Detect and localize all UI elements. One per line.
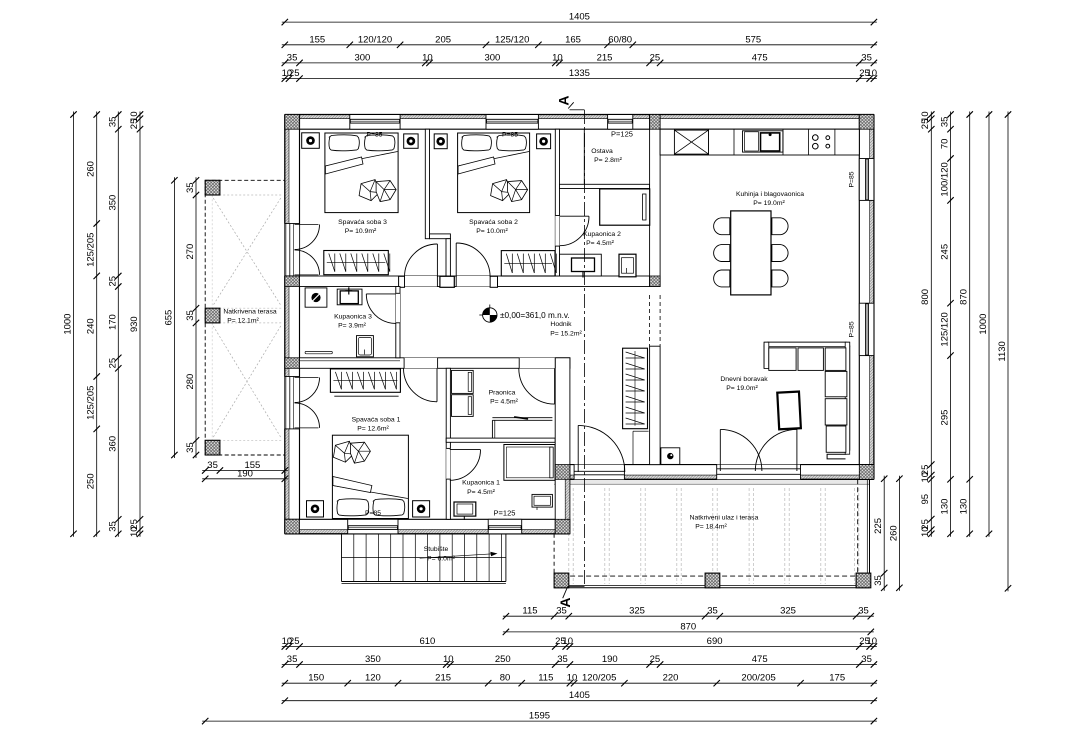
svg-text:360: 360	[107, 436, 118, 452]
svg-text:300: 300	[354, 52, 370, 63]
svg-text:575: 575	[745, 34, 761, 45]
svg-text:155: 155	[309, 34, 325, 45]
svg-text:1595: 1595	[529, 711, 550, 722]
svg-text:P= 3.9m²: P= 3.9m²	[338, 323, 367, 330]
svg-text:800: 800	[920, 289, 931, 305]
svg-text:1405: 1405	[569, 12, 590, 23]
svg-text:190: 190	[237, 468, 253, 479]
svg-text:P= 19.0m²: P= 19.0m²	[726, 385, 758, 392]
svg-text:Spavaća soba 2: Spavaća soba 2	[469, 219, 518, 226]
svg-text:100/120: 100/120	[940, 162, 951, 196]
svg-text:10: 10	[920, 526, 931, 537]
svg-text:Kupaonica 2: Kupaonica 2	[583, 231, 621, 238]
svg-text:190: 190	[602, 654, 618, 665]
svg-text:325: 325	[629, 606, 645, 617]
svg-text:200/205: 200/205	[741, 673, 775, 684]
svg-text:P= 15.2m²: P= 15.2m²	[550, 330, 582, 337]
svg-text:35: 35	[556, 606, 567, 617]
svg-text:125/205: 125/205	[86, 386, 97, 420]
svg-text:475: 475	[752, 654, 768, 665]
svg-text:±0,00=361,0 m.n.v.: ±0,00=361,0 m.n.v.	[500, 311, 570, 320]
svg-text:95: 95	[920, 494, 931, 505]
svg-text:150: 150	[308, 673, 324, 684]
svg-text:300: 300	[484, 52, 500, 63]
svg-text:P= 10.9m²: P= 10.9m²	[345, 228, 377, 235]
svg-text:10: 10	[867, 68, 878, 79]
svg-text:35: 35	[861, 654, 872, 665]
svg-text:P= 6.0m²: P= 6.0m²	[427, 556, 456, 563]
svg-text:35: 35	[557, 654, 568, 665]
svg-text:Stubište: Stubište	[424, 546, 449, 553]
svg-text:Kupaonica 1: Kupaonica 1	[462, 480, 500, 487]
svg-text:Natkrivena terasa: Natkrivena terasa	[223, 309, 276, 316]
svg-text:P=85: P=85	[849, 321, 856, 337]
svg-text:10: 10	[129, 526, 140, 537]
svg-text:P=85: P=85	[365, 510, 381, 517]
svg-text:70: 70	[940, 139, 951, 150]
svg-text:P=125: P=125	[611, 130, 633, 139]
svg-text:P= 10.0m²: P= 10.0m²	[476, 228, 508, 235]
svg-text:10: 10	[562, 636, 573, 647]
svg-text:215: 215	[435, 673, 451, 684]
svg-text:35: 35	[287, 52, 298, 63]
svg-text:170: 170	[107, 314, 118, 330]
svg-text:125/205: 125/205	[86, 233, 97, 267]
svg-text:205: 205	[435, 34, 451, 45]
svg-text:P=85: P=85	[366, 132, 382, 139]
svg-text:295: 295	[940, 410, 951, 426]
svg-text:115: 115	[522, 606, 537, 617]
svg-text:P= 2.8m²: P= 2.8m²	[594, 157, 623, 164]
svg-text:350: 350	[365, 654, 381, 665]
svg-text:35: 35	[207, 460, 218, 471]
svg-text:P= 4.5m²: P= 4.5m²	[586, 240, 615, 247]
svg-text:Dnevni boravak: Dnevni boravak	[720, 376, 768, 383]
svg-text:130: 130	[940, 499, 951, 515]
svg-text:655: 655	[163, 310, 174, 326]
svg-text:25: 25	[107, 276, 118, 287]
svg-text:35: 35	[940, 117, 951, 128]
svg-text:120/120: 120/120	[358, 34, 392, 45]
svg-text:130: 130	[959, 499, 970, 515]
svg-text:475: 475	[752, 52, 768, 63]
svg-text:245: 245	[940, 244, 951, 260]
svg-text:1000: 1000	[63, 314, 74, 335]
svg-text:610: 610	[419, 636, 435, 647]
svg-text:P= 4.5m²: P= 4.5m²	[490, 399, 519, 406]
svg-text:120: 120	[365, 673, 381, 684]
svg-text:115: 115	[538, 673, 553, 684]
svg-text:P=125: P=125	[494, 509, 516, 518]
svg-text:270: 270	[185, 244, 196, 260]
svg-text:930: 930	[129, 316, 140, 332]
svg-text:25: 25	[920, 119, 931, 130]
svg-text:25: 25	[107, 358, 118, 369]
svg-text:175: 175	[829, 673, 845, 684]
svg-text:Hodnik: Hodnik	[550, 321, 572, 328]
svg-text:260: 260	[888, 525, 899, 541]
svg-text:870: 870	[680, 621, 696, 632]
svg-text:260: 260	[86, 161, 97, 177]
svg-text:10: 10	[567, 673, 578, 684]
svg-text:870: 870	[959, 289, 970, 305]
svg-text:35: 35	[185, 310, 196, 321]
svg-text:P= 12.6m²: P= 12.6m²	[357, 426, 389, 433]
svg-text:35: 35	[707, 606, 718, 617]
svg-text:35: 35	[107, 521, 118, 532]
svg-text:Kupaonica 3: Kupaonica 3	[334, 314, 372, 321]
svg-text:25: 25	[129, 119, 140, 130]
svg-text:P= 4.5m²: P= 4.5m²	[467, 489, 496, 496]
svg-text:P=85: P=85	[849, 171, 856, 187]
svg-text:250: 250	[495, 654, 511, 665]
svg-text:Spavaća soba 1: Spavaća soba 1	[352, 417, 401, 424]
svg-text:220: 220	[663, 673, 679, 684]
svg-text:35: 35	[873, 575, 884, 586]
svg-text:250: 250	[86, 473, 97, 489]
svg-text:25: 25	[650, 654, 661, 665]
svg-text:Kuhinja i blagovaonica: Kuhinja i blagovaonica	[736, 191, 804, 198]
svg-text:280: 280	[185, 374, 196, 390]
svg-text:215: 215	[597, 52, 613, 63]
svg-text:1000: 1000	[978, 314, 989, 335]
svg-text:125/120: 125/120	[495, 34, 529, 45]
svg-text:60/80: 60/80	[608, 34, 632, 45]
svg-text:Praonica: Praonica	[489, 389, 516, 396]
svg-text:350: 350	[107, 195, 118, 211]
svg-text:35: 35	[287, 654, 298, 665]
svg-text:Ostava: Ostava	[591, 148, 613, 155]
svg-text:120/205: 120/205	[582, 673, 616, 684]
svg-text:P= 18.4m²: P= 18.4m²	[695, 524, 727, 531]
svg-text:165: 165	[565, 34, 581, 45]
svg-text:1405: 1405	[569, 690, 590, 701]
svg-text:25: 25	[289, 68, 300, 79]
svg-text:125/120: 125/120	[940, 312, 951, 346]
svg-text:35: 35	[107, 117, 118, 128]
svg-text:10: 10	[867, 636, 878, 647]
svg-text:A: A	[556, 95, 572, 105]
svg-text:Natkriveni ulaz i terasa: Natkriveni ulaz i terasa	[690, 515, 759, 522]
svg-text:35: 35	[861, 52, 872, 63]
svg-text:10: 10	[443, 654, 454, 665]
svg-text:240: 240	[86, 318, 97, 334]
svg-text:1130: 1130	[997, 341, 1008, 361]
svg-text:35: 35	[858, 606, 869, 617]
svg-text:10: 10	[920, 472, 931, 483]
svg-text:P= 19.0m²: P= 19.0m²	[753, 200, 785, 207]
svg-text:25: 25	[289, 636, 300, 647]
svg-text:P=85: P=85	[502, 132, 518, 139]
svg-text:80: 80	[500, 673, 511, 684]
svg-text:690: 690	[707, 636, 723, 647]
svg-text:225: 225	[873, 518, 884, 534]
svg-text:P= 12.1m²: P= 12.1m²	[227, 318, 259, 325]
svg-text:25: 25	[650, 52, 661, 63]
svg-text:10: 10	[552, 52, 563, 63]
svg-text:10: 10	[422, 52, 433, 63]
svg-text:35: 35	[185, 182, 196, 193]
svg-text:35: 35	[185, 442, 196, 453]
svg-text:Spavaća soba 3: Spavaća soba 3	[338, 219, 387, 226]
svg-text:1335: 1335	[569, 68, 590, 79]
svg-text:325: 325	[780, 606, 796, 617]
